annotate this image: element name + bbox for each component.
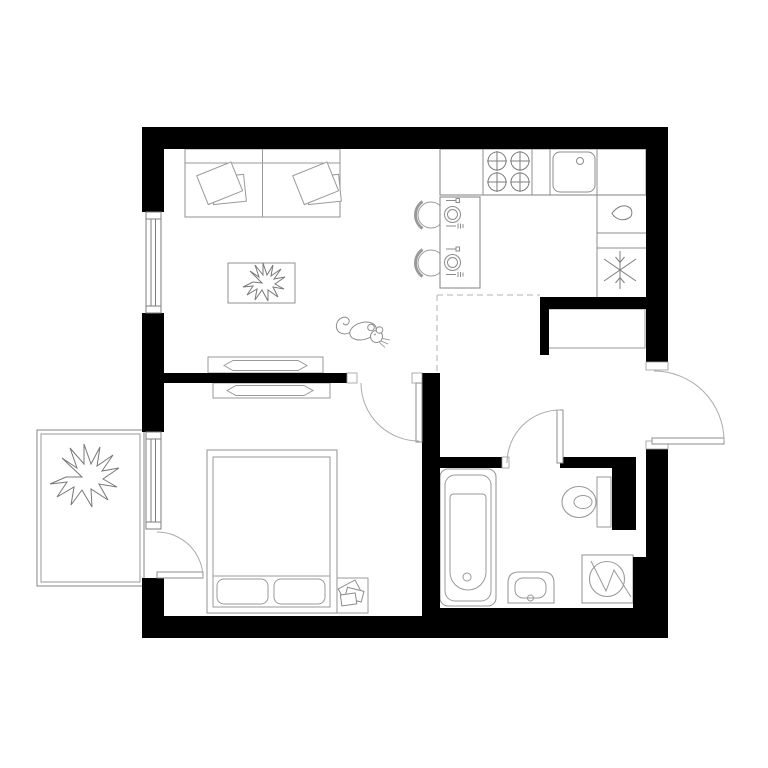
entrance-door-swing xyxy=(654,371,724,441)
mouse-ear-right xyxy=(376,327,383,334)
bedroom-door-leaf xyxy=(416,383,422,442)
living-room-window xyxy=(146,212,161,313)
living-room-window-cap-top xyxy=(146,212,161,219)
floor-plan-canvas xyxy=(0,0,768,768)
balcony-outline-inner xyxy=(41,434,140,582)
bedroom-door-swing xyxy=(361,383,419,441)
bathroom-door-swing xyxy=(507,410,560,463)
wall-outer-top xyxy=(142,127,668,149)
wall-living-bedroom xyxy=(142,373,347,383)
jamb-bedroom-door-left xyxy=(347,373,357,383)
mouse-tail xyxy=(336,317,351,334)
bed-pillow-left xyxy=(217,579,268,604)
kitchen-counter xyxy=(440,149,646,195)
place-setting-1-plate xyxy=(445,207,461,223)
wall-hall-bathroom xyxy=(422,373,440,616)
jamb-bathroom-door xyxy=(502,457,509,468)
wall-bathroom-corner xyxy=(633,557,668,638)
bed-pillow-right xyxy=(274,579,325,604)
floor-plan xyxy=(0,0,768,768)
wall-outer-left-upper xyxy=(142,127,164,212)
tv-living xyxy=(224,361,307,371)
wall-bathroom-left-seg xyxy=(440,457,502,468)
toilet-bowl xyxy=(562,487,596,518)
dishwasher-drop-icon xyxy=(612,206,632,220)
wall-outer-bottom-left xyxy=(142,616,440,638)
bedroom-window-cap-top xyxy=(146,432,161,439)
wall-closet-top xyxy=(540,297,648,309)
bedroom-window-cap-bottom xyxy=(146,522,161,529)
closet-shelf xyxy=(548,309,645,348)
jamb-entrance-top xyxy=(646,362,668,370)
toilet-cistern xyxy=(597,477,611,527)
bedroom-window xyxy=(146,432,161,529)
wall-closet-stub xyxy=(540,297,549,355)
balcony-door-swing xyxy=(157,532,203,578)
mouse-ear-left xyxy=(368,324,375,331)
living-room-window-cap-bottom xyxy=(146,306,161,313)
place-setting-2-plate xyxy=(445,255,461,271)
wall-outer-left-mid xyxy=(142,313,164,432)
kitchen-sink xyxy=(553,152,595,192)
entrance-door-leaf xyxy=(652,438,724,444)
bathroom-door-leaf xyxy=(557,410,563,463)
nightstand-item-3 xyxy=(340,593,356,606)
fridge-snowflake-icon xyxy=(604,251,636,289)
wall-outer-right-upper xyxy=(646,127,668,362)
mouse-eye xyxy=(374,334,376,336)
balcony-plant xyxy=(50,444,119,507)
balcony-door-leaf xyxy=(157,572,203,578)
tv-bedroom xyxy=(227,386,313,396)
jamb-bedroom-door-right xyxy=(412,373,422,383)
balcony-outline-outer xyxy=(37,430,144,586)
wall-toilet-duct xyxy=(612,457,636,530)
